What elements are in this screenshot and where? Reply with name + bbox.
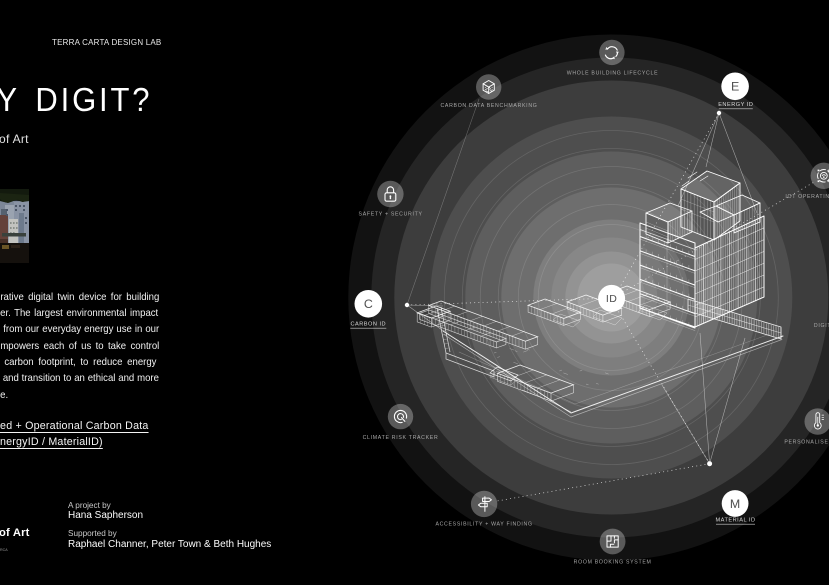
svg-text:ENERGY ID: ENERGY ID [718, 102, 753, 108]
svg-text:DIGITAL TWIN INTERFACE: DIGITAL TWIN INTERFACE [814, 323, 829, 329]
svg-text:SAFETY + SECURITY: SAFETY + SECURITY [359, 211, 423, 217]
svg-text:ID: ID [606, 293, 618, 305]
svg-text:CLIMATE RISK TRACKER: CLIMATE RISK TRACKER [363, 435, 439, 441]
svg-text:WHOLE BUILDING LIFECYCLE: WHOLE BUILDING LIFECYCLE [567, 70, 658, 76]
svg-text:CARBON ID: CARBON ID [351, 322, 387, 328]
svg-text:ACCESSIBILITY + WAY FINDING: ACCESSIBILITY + WAY FINDING [435, 522, 532, 528]
svg-text:E: E [731, 80, 739, 94]
svg-text:C: C [364, 297, 373, 311]
svg-text:ROOM BOOKING SYSTEM: ROOM BOOKING SYSTEM [574, 559, 652, 565]
svg-text:CARBON DATA BENCHMARKING: CARBON DATA BENCHMARKING [440, 103, 537, 109]
svg-text:M: M [730, 497, 740, 511]
svg-text:PERSONALISED DATA: PERSONALISED DATA [784, 439, 829, 445]
svg-text:MATERIAL ID: MATERIAL ID [716, 518, 756, 524]
svg-text:IOT OPERATING SYSTEM: IOT OPERATING SYSTEM [785, 194, 829, 200]
